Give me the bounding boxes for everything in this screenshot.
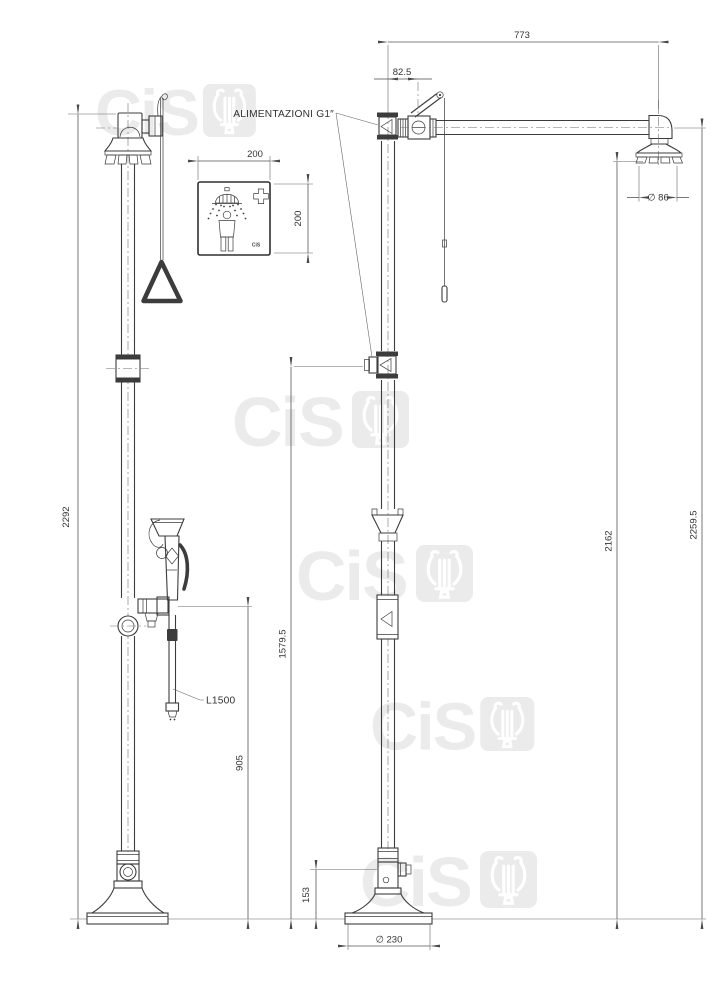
watermark-text: CiS <box>370 690 475 764</box>
watermark-text: CiS <box>95 76 198 149</box>
dim-base-diameter: ∅ 230 <box>348 923 430 950</box>
pipe-union-front <box>106 355 150 382</box>
base-plate-side <box>345 913 432 924</box>
dim-label: 2292 <box>61 506 72 527</box>
dim-label: 2162 <box>604 530 615 551</box>
dim-shower-outlet-height: 2162 <box>604 162 644 920</box>
dim-label: ∅ 86 <box>647 193 668 204</box>
dim-valve-offset: 82.5 <box>374 67 432 113</box>
dim-label: 1579.5 <box>278 629 289 658</box>
top-tee <box>377 113 398 140</box>
handspray-hook <box>149 520 163 547</box>
hose-length-text: L1500 <box>206 696 235 707</box>
lyre-icon <box>480 697 534 751</box>
shower-head-side <box>636 144 683 163</box>
dim-label: 200 <box>247 149 263 160</box>
dimensions: 2292 773 82.5 ∅ 86 2162 <box>61 30 706 950</box>
dim-head-diameter: ∅ 86 <box>627 166 689 204</box>
safety-sign: CiS <box>198 182 270 255</box>
dim-label: ∅ 230 <box>376 935 403 946</box>
watermarks: CiS CiS CiS CiS CiS <box>95 76 537 921</box>
dim-label: 82.5 <box>393 67 412 78</box>
base-front <box>87 851 168 924</box>
dim-label: 153 <box>301 887 312 903</box>
dim-label: 2259.5 <box>689 510 700 539</box>
technical-drawing-page: CiS CiS CiS CiS CiS <box>0 0 720 1000</box>
dim-sign-width: 200 <box>198 149 270 180</box>
hose-length-note: L1500 <box>173 689 235 707</box>
dim-label: 773 <box>514 30 530 41</box>
arm-elbow <box>649 116 672 139</box>
watermark: CiS <box>360 843 537 921</box>
triangle-pull-handle <box>144 262 181 301</box>
pole-front <box>122 103 135 852</box>
dim-label: 200 <box>293 211 304 227</box>
ball-valve <box>398 92 443 139</box>
side-view <box>345 92 683 924</box>
front-view <box>87 94 187 924</box>
dim-total-height-side: 2259.5 <box>674 128 706 919</box>
lyre-icon <box>416 545 473 602</box>
supply-inlet-tee <box>365 352 399 379</box>
dim-eyewash-outlet-height: 905 <box>178 607 252 920</box>
watermark-text: CiS <box>232 383 343 461</box>
base-plate-front <box>87 913 168 924</box>
shower-arm <box>400 100 672 166</box>
supply-note-text: ALIMENTAZIONI G1″ <box>233 109 334 120</box>
watermark: CiS <box>232 383 409 461</box>
sleeve-coupling <box>377 595 398 639</box>
dim-sign-height: 200 <box>274 184 313 253</box>
dim-overall-height-front: 2292 <box>61 114 116 919</box>
drawing-svg: CiS CiS CiS CiS CiS <box>0 0 720 1000</box>
lyre-icon <box>480 851 537 908</box>
sign-logo-text: CiS <box>252 243 261 249</box>
handspray-lever <box>180 545 187 589</box>
lyre-icon <box>352 391 409 448</box>
pull-rod-side <box>442 98 447 302</box>
dim-label: 905 <box>235 755 246 771</box>
